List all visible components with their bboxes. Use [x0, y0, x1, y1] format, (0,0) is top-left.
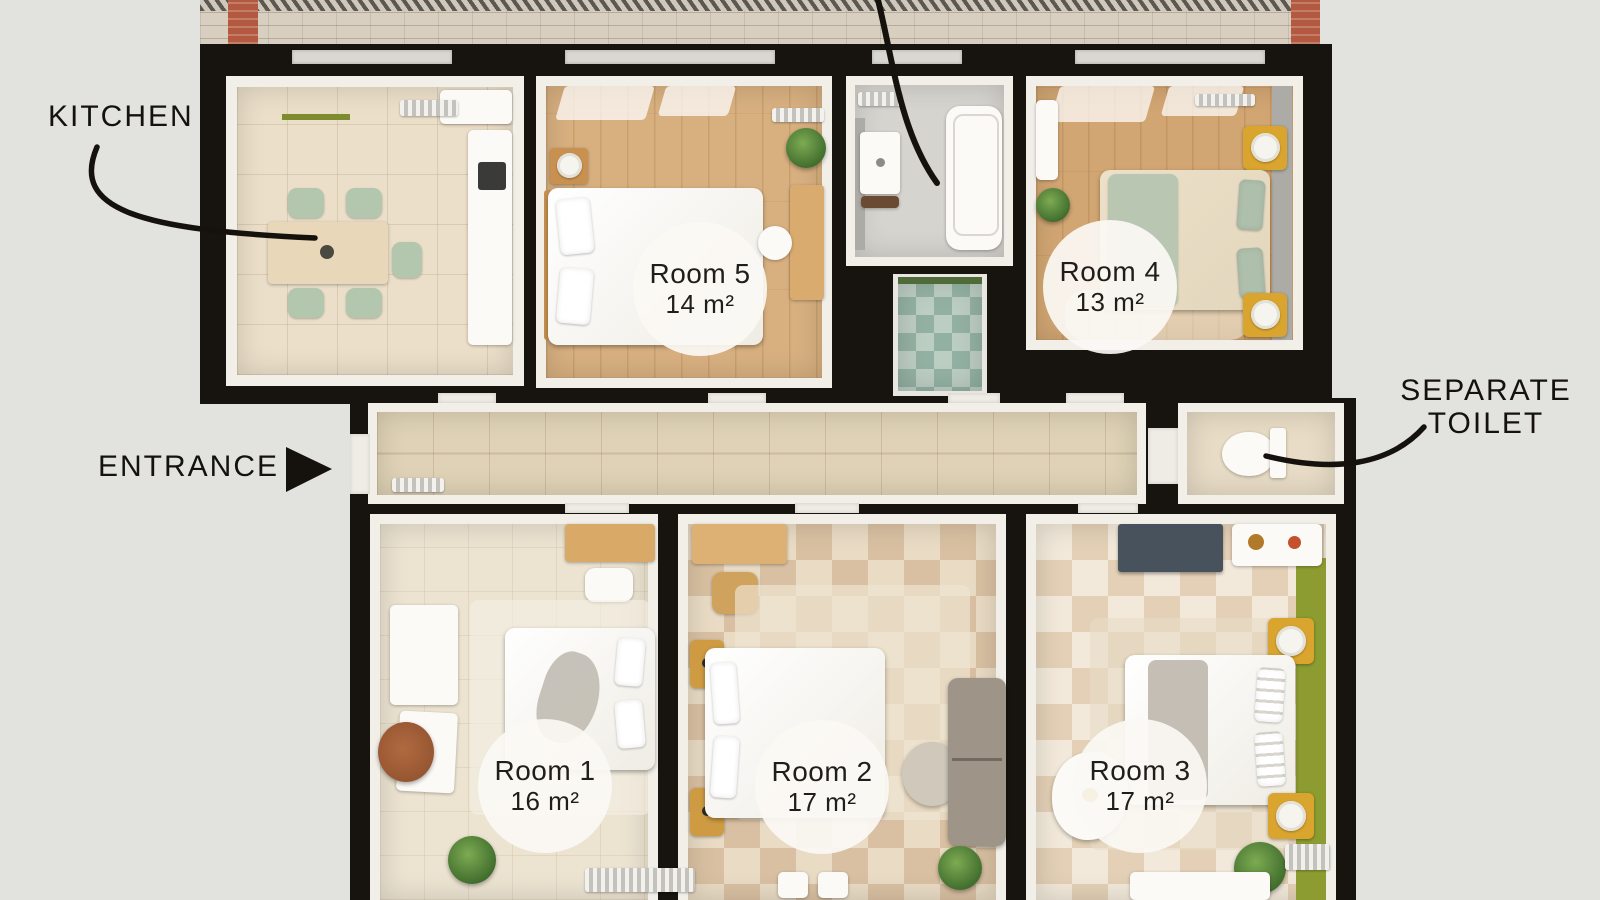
room4-lamp-top	[1251, 133, 1280, 162]
room4-badge-area: 13 m²	[1076, 288, 1145, 318]
kitchen-table-centerpiece	[320, 245, 334, 259]
room2-plant	[938, 846, 982, 890]
room2-badge-name: Room 2	[771, 756, 872, 788]
room5-desk	[790, 185, 824, 300]
room1-pillow	[614, 637, 646, 687]
room4-radiator	[1195, 94, 1255, 106]
shower-floor	[893, 274, 987, 396]
room1-badge-name: Room 1	[494, 755, 595, 787]
room2-pillow	[710, 661, 740, 725]
room1-badge-area: 16 m²	[511, 787, 580, 817]
room1-desk-chair	[585, 568, 633, 602]
roof-hatch-strip	[200, 0, 1320, 11]
room5-lamp-top	[557, 153, 582, 178]
room3-pillow	[1254, 667, 1286, 723]
kitchen-window-sill-plant	[282, 114, 350, 120]
room3-radiator	[1285, 844, 1330, 870]
door-kitchen	[438, 393, 496, 403]
room5-curtain	[555, 86, 655, 120]
room1-desk	[565, 524, 655, 562]
separate-toilet-label: SEPARATE TOILET	[1400, 374, 1572, 440]
window-room4	[1075, 50, 1265, 64]
room3-badge-area: 17 m²	[1106, 787, 1175, 817]
door-room1	[565, 503, 629, 513]
room5-badge-name: Room 5	[649, 258, 750, 290]
room5-badge: Room 5 14 m²	[633, 222, 767, 356]
window-kitchen	[292, 50, 452, 64]
room4-badge: Room 4 13 m²	[1043, 220, 1177, 354]
room1-side-table	[378, 722, 434, 782]
room5-badge-area: 14 m²	[666, 290, 735, 320]
entrance-arrow-icon	[286, 447, 332, 492]
bathroom-radiator	[858, 92, 902, 106]
room5-pillow	[555, 196, 595, 255]
room2-badge: Room 2 17 m²	[755, 720, 889, 854]
window-room5	[565, 50, 775, 64]
kitchen-radiator	[400, 100, 458, 116]
corridor-floor	[368, 403, 1146, 504]
kitchen-chair	[346, 188, 382, 218]
room3-wardrobe	[1118, 524, 1223, 572]
room2-pillow	[710, 735, 740, 799]
room1-badge: Room 1 16 m²	[478, 719, 612, 853]
room3-badge: Room 3 17 m²	[1073, 719, 1207, 853]
door-room3	[1078, 503, 1138, 513]
room5-radiator	[772, 108, 824, 122]
floor-plan: Room 5 14 m² Room 4 13 m² Room 1 16 m² R…	[0, 0, 1600, 900]
room2-desk	[692, 524, 787, 564]
kitchen-chair	[346, 288, 382, 318]
door-room2	[795, 503, 859, 513]
room4-curtain	[1050, 86, 1155, 122]
room5-desk-chair	[758, 226, 792, 260]
bathtub-inner	[953, 114, 999, 236]
room5-plant	[786, 128, 826, 168]
toilet-bowl	[1222, 432, 1274, 476]
room3-dresser-plant	[1248, 534, 1264, 550]
bathroom-vanity-base	[861, 196, 899, 208]
door-room5	[708, 393, 766, 403]
room2-badge-area: 17 m²	[788, 788, 857, 818]
room1-wardrobe	[390, 605, 458, 705]
shower-shelf	[898, 277, 982, 284]
room4-pillow	[1236, 179, 1265, 231]
room3-bed-foot-blanket	[1130, 872, 1270, 900]
bathroom-sink-drain	[876, 158, 885, 167]
room5-curtain	[658, 86, 737, 116]
room4-lamp-bottom	[1251, 300, 1280, 329]
kitchen-stove	[478, 162, 506, 190]
door-bathroom	[948, 393, 1000, 403]
room3-badge-name: Room 3	[1089, 755, 1190, 787]
room3-lamp-top	[1276, 626, 1306, 656]
entrance-label: ENTRANCE	[98, 450, 279, 484]
room4-plant	[1036, 188, 1070, 222]
room5-pillow	[556, 267, 595, 326]
room1-pillow	[614, 699, 646, 749]
room2-sofa	[948, 678, 1006, 846]
room1-radiator	[585, 868, 695, 892]
room2-sofa-cushion-line	[952, 758, 1002, 761]
room4-pillow	[1236, 247, 1265, 299]
room3-dresser	[1232, 524, 1322, 566]
window-bathroom	[872, 50, 962, 64]
room1-plant	[448, 836, 496, 884]
room3-lamp-bottom	[1276, 801, 1306, 831]
kitchen-chair	[392, 242, 422, 278]
room2-slippers	[818, 872, 848, 898]
room3-dresser-bowl	[1288, 536, 1301, 549]
door-toilet	[1148, 428, 1178, 484]
room4-badge-name: Room 4	[1059, 256, 1160, 288]
door-room4	[1066, 393, 1124, 403]
door-entrance	[350, 434, 370, 494]
corridor-doormat	[392, 478, 444, 492]
kitchen-chair	[288, 288, 324, 318]
kitchen-label: KITCHEN	[48, 100, 194, 134]
toilet-tank	[1270, 428, 1286, 478]
room2-slippers	[778, 872, 808, 898]
room3-pillow	[1254, 731, 1286, 787]
kitchen-chair	[288, 188, 324, 218]
room4-dresser	[1036, 100, 1058, 180]
